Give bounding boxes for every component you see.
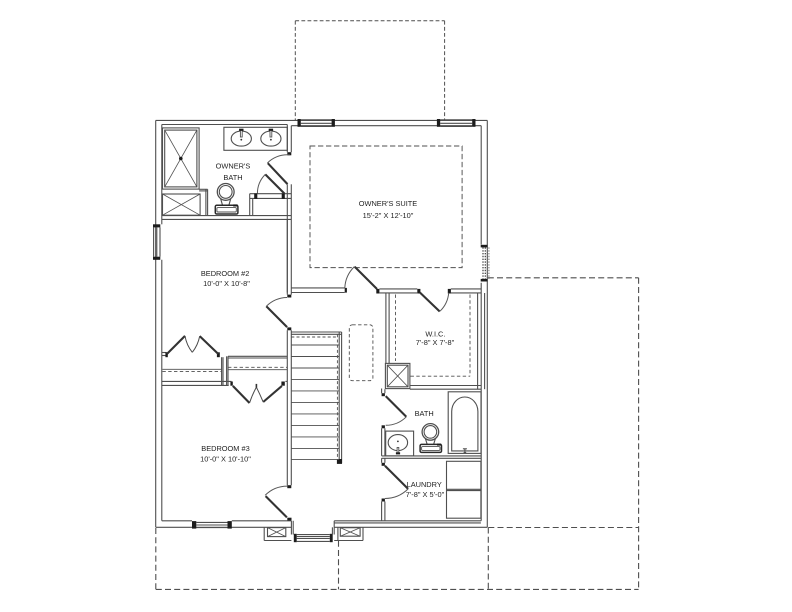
svg-text:OWNER'S SUITE: OWNER'S SUITE [359, 199, 418, 208]
svg-text:15'-2" X 12'-10": 15'-2" X 12'-10" [363, 211, 414, 220]
svg-text:7'-8" X 5'-0": 7'-8" X 5'-0" [406, 490, 445, 499]
svg-text:W.I.C.: W.I.C. [425, 329, 445, 338]
svg-text:10'-0" X 10'-8": 10'-0" X 10'-8" [203, 279, 250, 288]
svg-text:LAUNDRY: LAUNDRY [407, 480, 442, 489]
svg-text:BEDROOM #2: BEDROOM #2 [201, 269, 249, 278]
svg-text:10'-0" X 10'-10": 10'-0" X 10'-10" [200, 455, 251, 464]
svg-text:7'-8" X 7'-8": 7'-8" X 7'-8" [416, 338, 455, 347]
svg-text:OWNER'S: OWNER'S [216, 162, 251, 171]
svg-text:BEDROOM #3: BEDROOM #3 [201, 444, 249, 453]
svg-text:BATH: BATH [415, 409, 434, 418]
svg-text:BATH: BATH [223, 173, 242, 182]
